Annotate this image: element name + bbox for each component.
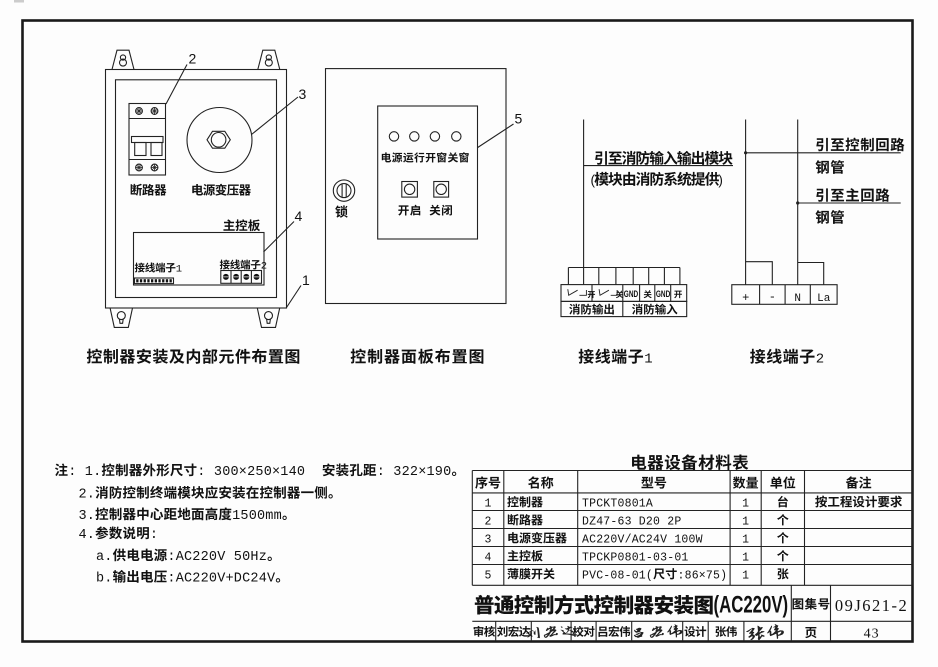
svg-text:1: 1 (302, 272, 310, 288)
svg-text:2: 2 (485, 515, 492, 528)
svg-text:3.: 3. (79, 509, 96, 524)
svg-text:3: 3 (485, 533, 492, 546)
svg-text:4: 4 (295, 208, 303, 224)
svg-text:GND: GND (656, 289, 670, 300)
svg-text:1: 1 (742, 497, 749, 510)
svg-text:4.: 4. (79, 528, 96, 543)
svg-text:a.: a. (96, 550, 113, 565)
svg-text:2: 2 (816, 351, 825, 367)
svg-text:3: 3 (299, 86, 307, 102)
svg-text:): ) (718, 173, 722, 188)
svg-text::86×75): :86×75) (678, 569, 728, 582)
svg-text::AC220V 50Hz: :AC220V 50Hz (167, 550, 267, 565)
svg-text:-: - (769, 290, 776, 304)
svg-text:1500mm: 1500mm (232, 509, 282, 524)
svg-text:AC220V/AC24V 100W: AC220V/AC24V 100W (582, 533, 703, 546)
svg-text:5: 5 (515, 111, 523, 127)
svg-text:GND: GND (624, 289, 638, 300)
svg-text:1: 1 (742, 569, 749, 582)
svg-text:N: N (794, 293, 801, 305)
svg-text:(AC220V): (AC220V) (714, 592, 789, 619)
svg-text:DZ47-63 D20 2P: DZ47-63 D20 2P (582, 515, 681, 528)
svg-text:1: 1 (742, 533, 749, 546)
svg-text::: : (150, 528, 158, 543)
svg-text:4: 4 (485, 551, 492, 564)
svg-text:5: 5 (485, 569, 492, 582)
svg-text:1: 1 (742, 515, 749, 528)
svg-text:TPCKT0801A: TPCKT0801A (582, 497, 653, 510)
svg-text:43: 43 (864, 627, 880, 642)
svg-text:b.: b. (96, 572, 113, 587)
svg-text:: 322×190: : 322×190 (377, 465, 452, 480)
svg-text:(: ( (591, 173, 596, 188)
svg-text:TPCKP0801-03-01: TPCKP0801-03-01 (582, 551, 689, 564)
svg-text:1: 1 (644, 351, 653, 367)
svg-text:1: 1 (485, 497, 492, 510)
svg-text:+: + (742, 291, 749, 305)
svg-text::AC220V+DC24V: :AC220V+DC24V (167, 572, 276, 587)
svg-text:09J621-2: 09J621-2 (835, 596, 908, 615)
svg-text:2.: 2. (79, 488, 96, 503)
svg-text:2: 2 (189, 51, 197, 67)
svg-text:: 1.: : 1. (68, 465, 101, 480)
svg-text:: 300×250×140: : 300×250×140 (197, 465, 305, 480)
svg-text:1: 1 (176, 264, 182, 276)
svg-text:La: La (817, 293, 831, 305)
svg-text:1: 1 (742, 551, 749, 564)
svg-text:PVC-08-01(: PVC-08-01( (582, 569, 653, 582)
